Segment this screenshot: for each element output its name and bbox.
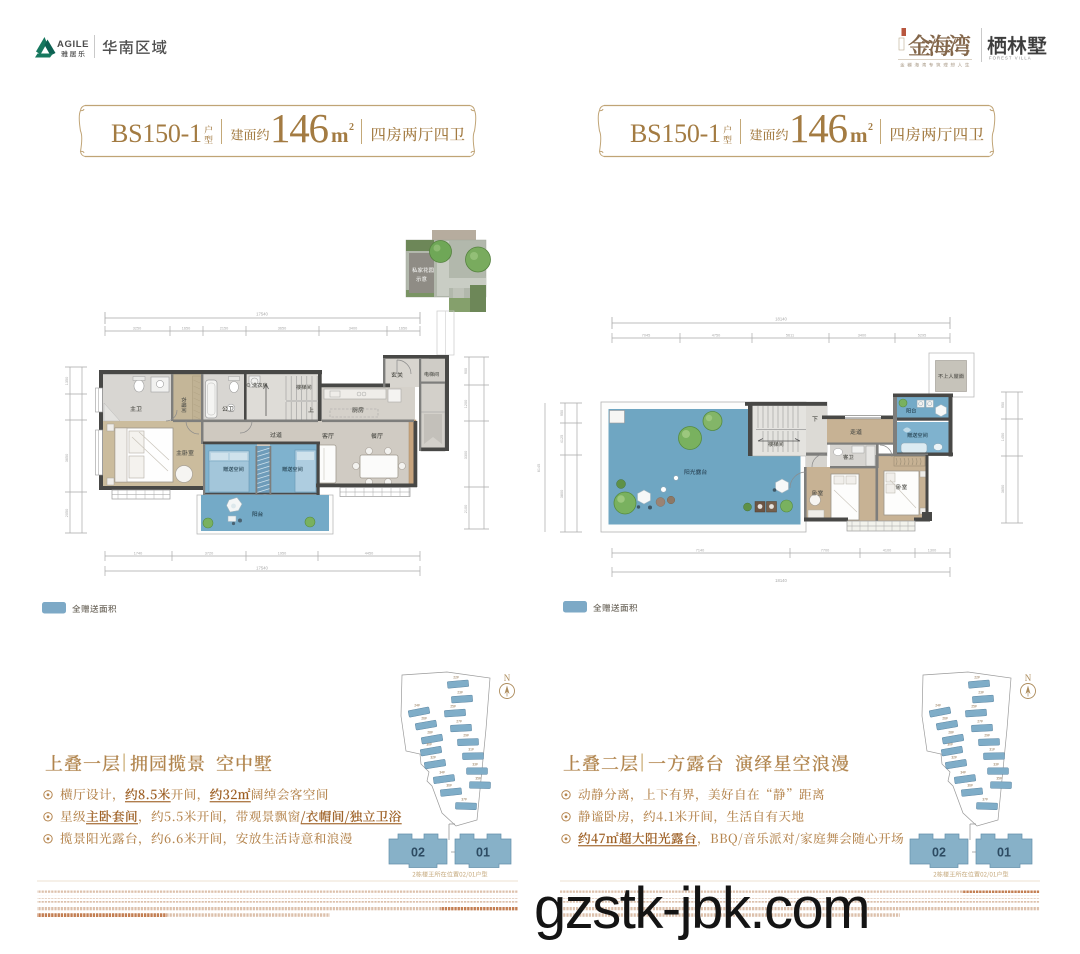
svg-text:3650: 3650 xyxy=(65,454,69,462)
svg-text:29#: 29# xyxy=(984,734,990,738)
svg-text:2100: 2100 xyxy=(464,505,468,513)
svg-text:28#: 28# xyxy=(427,731,433,735)
svg-text:35#: 35# xyxy=(475,777,481,781)
svg-text:N: N xyxy=(504,673,511,683)
svg-text:BS150-1: BS150-1 xyxy=(111,119,202,148)
svg-text:3300: 3300 xyxy=(464,451,468,459)
svg-text:gzstk-jbk.com: gzstk-jbk.com xyxy=(534,876,869,941)
svg-text:25#: 25# xyxy=(971,705,977,709)
svg-text:28#: 28# xyxy=(948,731,954,735)
svg-text:3650: 3650 xyxy=(278,327,286,331)
svg-text:4100: 4100 xyxy=(883,549,891,553)
svg-text:33#: 33# xyxy=(993,763,999,767)
svg-text:146: 146 xyxy=(789,105,848,151)
svg-text:4750: 4750 xyxy=(712,334,720,338)
svg-text:2: 2 xyxy=(868,122,873,133)
svg-text:7700: 7700 xyxy=(821,549,829,553)
svg-text:4450: 4450 xyxy=(365,552,373,556)
svg-text:35#: 35# xyxy=(996,777,1002,781)
svg-text:17540: 17540 xyxy=(256,312,268,317)
svg-text:FOREST VILLA: FOREST VILLA xyxy=(989,56,1032,61)
svg-text:01: 01 xyxy=(476,846,490,860)
svg-text:1650: 1650 xyxy=(182,327,190,331)
svg-text:BS150-1: BS150-1 xyxy=(630,119,721,148)
svg-text:37#: 37# xyxy=(982,798,988,802)
svg-text:950: 950 xyxy=(1001,402,1005,408)
svg-text:1350: 1350 xyxy=(65,377,69,385)
svg-text:34#: 34# xyxy=(960,771,966,775)
svg-text:1650: 1650 xyxy=(399,327,407,331)
svg-text:23#: 23# xyxy=(457,691,463,695)
svg-text:36#: 36# xyxy=(446,784,452,788)
svg-text:32#: 32# xyxy=(430,756,436,760)
svg-text:7045: 7045 xyxy=(642,334,650,338)
svg-text:24#: 24# xyxy=(414,704,420,708)
svg-text:m: m xyxy=(331,123,349,147)
svg-text:2150: 2150 xyxy=(220,327,228,331)
svg-text:N: N xyxy=(1025,673,1032,683)
svg-text:26#: 26# xyxy=(421,717,427,721)
svg-text:33#: 33# xyxy=(472,763,478,767)
svg-text:37#: 37# xyxy=(461,798,467,802)
svg-text:3800: 3800 xyxy=(560,490,564,498)
svg-text:2: 2 xyxy=(349,122,354,133)
svg-text:30#: 30# xyxy=(947,743,953,747)
svg-text:34#: 34# xyxy=(439,771,445,775)
svg-text:32#: 32# xyxy=(951,756,957,760)
svg-text:18140: 18140 xyxy=(775,317,787,322)
svg-text:31#: 31# xyxy=(468,748,474,752)
svg-text:5295: 5295 xyxy=(918,334,926,338)
svg-text:26#: 26# xyxy=(942,717,948,721)
svg-text:31#: 31# xyxy=(989,748,995,752)
svg-text:AGILE: AGILE xyxy=(57,39,89,50)
svg-text:22#: 22# xyxy=(974,676,980,680)
svg-text:2050: 2050 xyxy=(65,509,69,517)
svg-text:1300: 1300 xyxy=(928,549,936,553)
svg-text:1740: 1740 xyxy=(134,552,142,556)
svg-text:02: 02 xyxy=(411,846,425,860)
svg-text:18140: 18140 xyxy=(775,578,787,583)
svg-text:3250: 3250 xyxy=(133,327,141,331)
svg-text:3400: 3400 xyxy=(858,334,866,338)
svg-text:1200: 1200 xyxy=(464,400,468,408)
svg-text:3400: 3400 xyxy=(349,327,357,331)
svg-text:29#: 29# xyxy=(463,734,469,738)
svg-text:146: 146 xyxy=(270,105,329,151)
svg-text:6145: 6145 xyxy=(537,464,541,472)
svg-text:5611: 5611 xyxy=(786,334,794,338)
svg-text:900: 900 xyxy=(464,368,468,374)
svg-text:24#: 24# xyxy=(935,704,941,708)
svg-text:23#: 23# xyxy=(978,691,984,695)
svg-text:1450: 1450 xyxy=(1001,433,1005,441)
svg-text:17540: 17540 xyxy=(256,566,268,571)
svg-text:3720: 3720 xyxy=(205,552,213,556)
svg-text:1950: 1950 xyxy=(278,552,286,556)
svg-text:7140: 7140 xyxy=(696,549,704,553)
svg-text:36#: 36# xyxy=(967,784,973,788)
svg-text:25#: 25# xyxy=(450,705,456,709)
svg-text:27#: 27# xyxy=(977,720,983,724)
svg-text:4125: 4125 xyxy=(560,435,564,443)
svg-text:30#: 30# xyxy=(426,743,432,747)
svg-text:3650: 3650 xyxy=(1001,485,1005,493)
svg-text:22#: 22# xyxy=(453,676,459,680)
svg-text:950: 950 xyxy=(560,410,564,416)
svg-text:01: 01 xyxy=(997,846,1011,860)
svg-text:27#: 27# xyxy=(456,720,462,724)
svg-text:02: 02 xyxy=(932,846,946,860)
svg-text:m: m xyxy=(850,123,868,147)
